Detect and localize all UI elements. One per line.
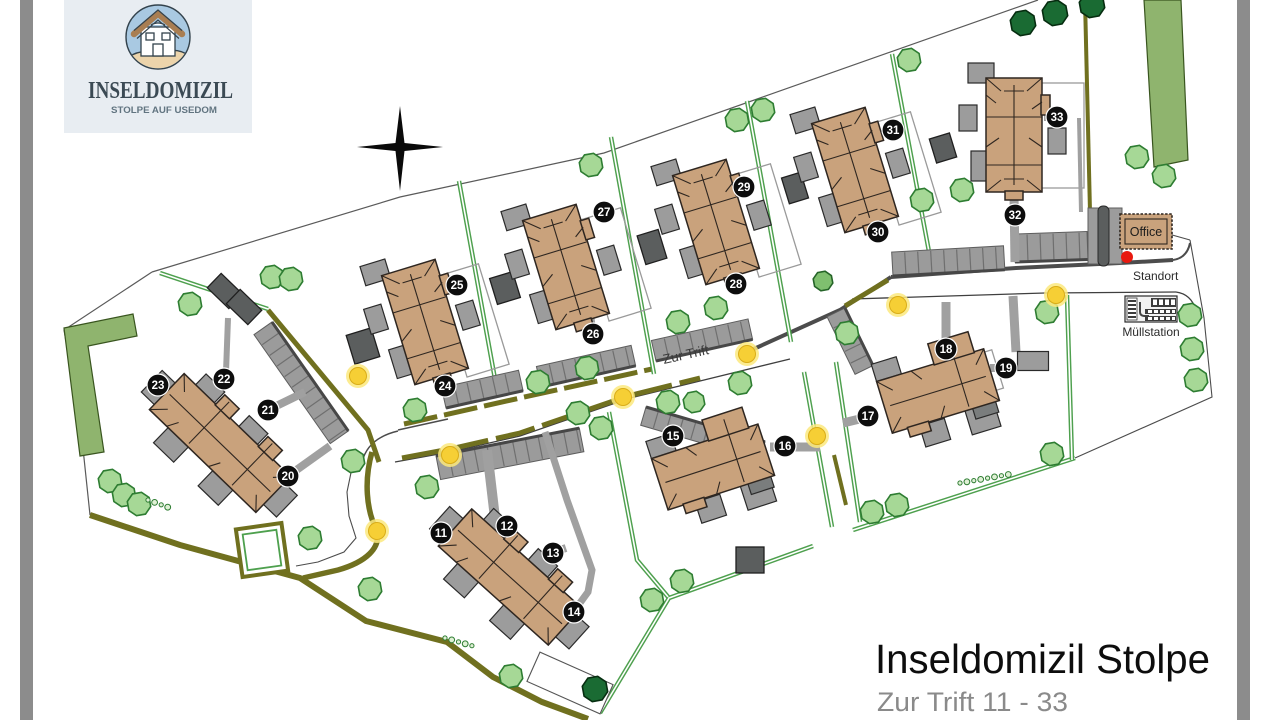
- svg-text:20: 20: [282, 471, 295, 483]
- svg-text:Zur Trift 11 - 33: Zur Trift 11 - 33: [877, 687, 1068, 717]
- svg-text:32: 32: [1009, 210, 1022, 222]
- svg-text:18: 18: [940, 344, 953, 356]
- svg-text:INSELDOMIZIL: INSELDOMIZIL: [88, 78, 233, 104]
- svg-text:STOLPE AUF USEDOM: STOLPE AUF USEDOM: [111, 105, 217, 115]
- svg-text:17: 17: [862, 411, 875, 423]
- svg-text:19: 19: [1000, 363, 1013, 375]
- svg-text:30: 30: [872, 227, 885, 239]
- svg-text:14: 14: [568, 607, 581, 619]
- svg-text:24: 24: [439, 381, 452, 393]
- svg-text:11: 11: [435, 528, 448, 540]
- svg-text:23: 23: [152, 380, 165, 392]
- svg-text:29: 29: [738, 182, 751, 194]
- svg-text:12: 12: [501, 521, 514, 533]
- svg-text:21: 21: [262, 405, 275, 417]
- svg-text:25: 25: [451, 280, 464, 292]
- svg-text:28: 28: [730, 279, 743, 291]
- svg-text:26: 26: [587, 329, 600, 341]
- svg-text:22: 22: [218, 374, 231, 386]
- svg-text:15: 15: [667, 431, 680, 443]
- svg-text:33: 33: [1051, 112, 1064, 124]
- svg-text:Office: Office: [1130, 225, 1162, 239]
- svg-text:16: 16: [779, 441, 792, 453]
- svg-text:Müllstation: Müllstation: [1122, 325, 1179, 339]
- svg-text:Standort: Standort: [1133, 269, 1179, 283]
- svg-text:13: 13: [547, 548, 560, 560]
- svg-text:Inseldomizil Stolpe: Inseldomizil Stolpe: [875, 636, 1210, 682]
- svg-text:31: 31: [887, 125, 900, 137]
- svg-text:27: 27: [598, 207, 611, 219]
